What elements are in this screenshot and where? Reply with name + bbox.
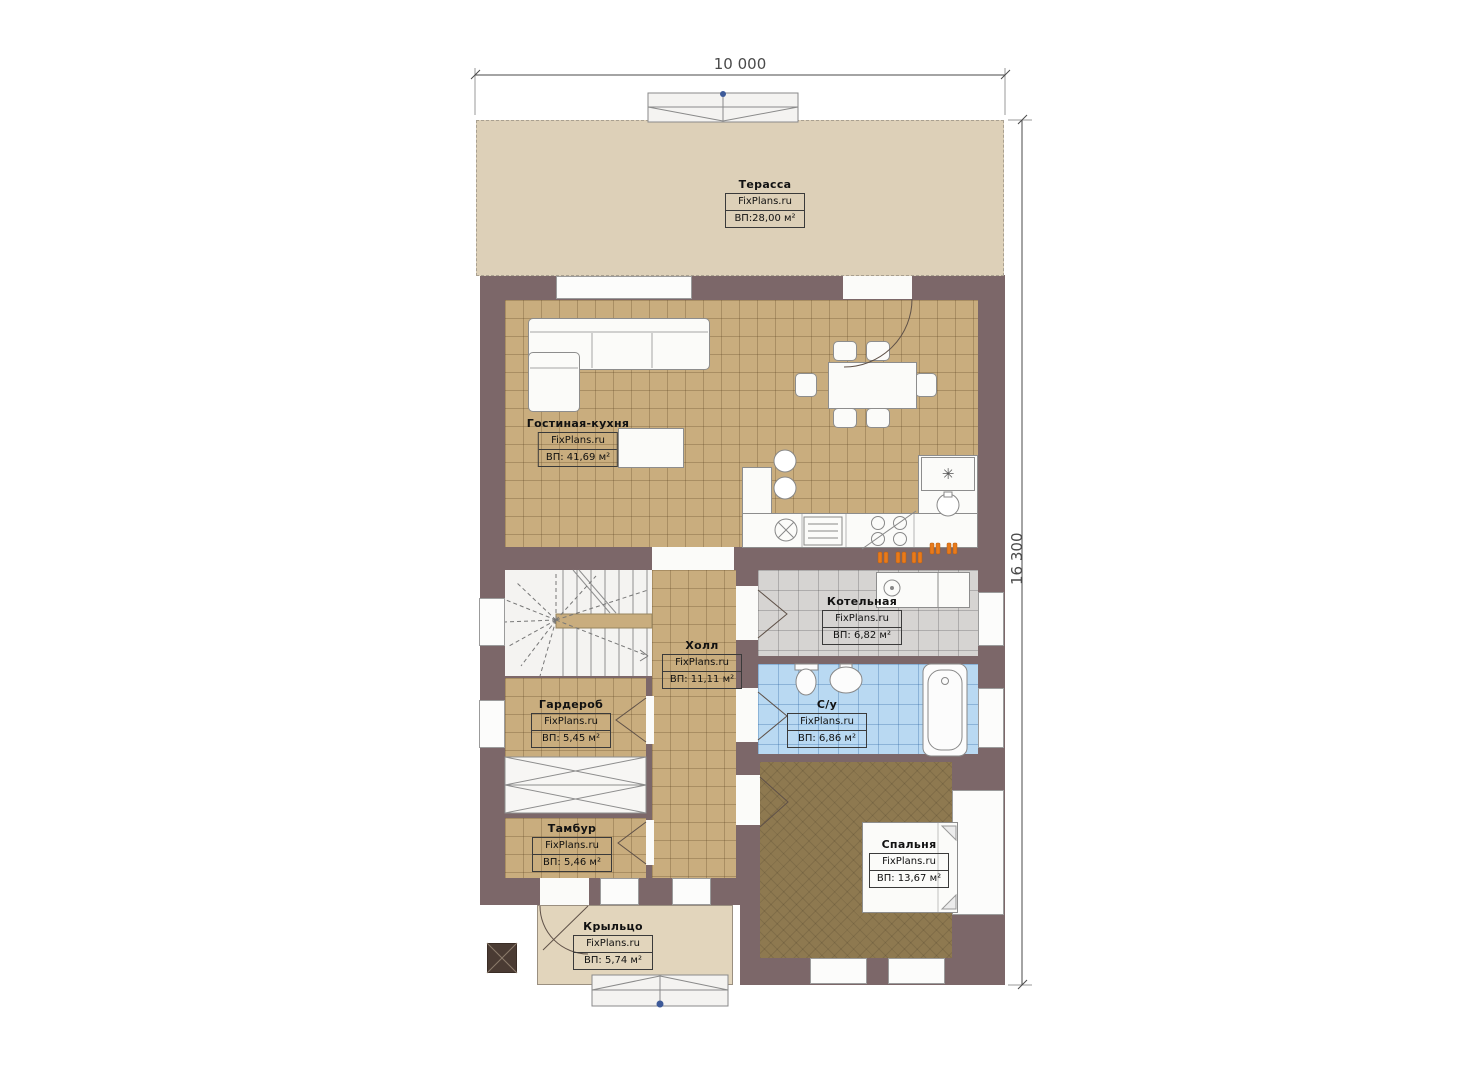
window-stairs-left [479, 598, 505, 646]
window-bathroom-right [978, 688, 1004, 748]
step-marker-icon [657, 1001, 664, 1008]
room-name: Холл [662, 639, 742, 652]
room-name: Крыльцо [573, 920, 653, 933]
room-info-box: FixPlans.ru ВП: 5,46 м² [532, 837, 612, 872]
room-area: ВП: 41,69 м² [539, 449, 617, 466]
brand-text: FixPlans.ru [539, 433, 617, 449]
door-opening-bathroom [736, 688, 758, 742]
room-label-wardrobe: Гардероб FixPlans.ru ВП: 5,45 м² [531, 698, 611, 748]
kitchen-counter [742, 513, 978, 548]
step-marker-icon [720, 91, 726, 97]
room-name: Котельная [822, 595, 902, 608]
kitchen-island [742, 467, 772, 515]
door-opening-vestibule [646, 820, 654, 865]
sofa-chaise [528, 352, 580, 412]
dimension-height-label: 16 300 [1008, 533, 1026, 586]
room-area: ВП: 6,86 м² [788, 730, 866, 747]
room-label-bathroom: С/у FixPlans.ru ВП: 6,86 м² [787, 698, 867, 748]
room-name: С/у [787, 698, 867, 711]
fridge-glyph: ✳ [942, 465, 955, 483]
room-name: Гостиная-кухня [527, 417, 629, 430]
porch-column [487, 943, 517, 973]
room-name: Тамбур [532, 822, 612, 835]
room-label-hall: Холл FixPlans.ru ВП: 11,11 м² [662, 639, 742, 689]
brand-text: FixPlans.ru [532, 714, 610, 730]
brand-text: FixPlans.ru [870, 854, 948, 870]
hall-floor [652, 570, 736, 878]
room-info-box: FixPlans.ru ВП: 5,74 м² [573, 935, 653, 970]
room-info-box: FixPlans.ru ВП: 6,82 м² [822, 610, 902, 645]
room-label-living: Гостиная-кухня FixPlans.ru ВП: 41,69 м² [527, 417, 629, 467]
room-area: ВП: 5,74 м² [574, 952, 652, 969]
room-name: Спальня [869, 838, 949, 851]
room-label-bedroom: Спальня FixPlans.ru ВП: 13,67 м² [869, 838, 949, 888]
window-boiler-right [978, 592, 1004, 646]
window-bedroom-bottom-2 [888, 958, 945, 984]
room-area: ВП: 5,46 м² [533, 854, 611, 871]
window-living-top [556, 276, 692, 299]
room-name: Гардероб [531, 698, 611, 711]
room-info-box: FixPlans.ru ВП: 5,45 м² [531, 713, 611, 748]
brand-text: FixPlans.ru [788, 714, 866, 730]
brand-text: FixPlans.ru [726, 194, 804, 210]
brand-text: FixPlans.ru [533, 838, 611, 854]
dining-chair [795, 373, 817, 397]
door-opening-terrace [843, 276, 912, 299]
opening-bottom-wall-1 [600, 878, 639, 905]
window-bedroom-bottom-1 [810, 958, 867, 984]
room-area: ВП: 11,11 м² [663, 671, 741, 688]
room-label-boiler: Котельная FixPlans.ru ВП: 6,82 м² [822, 595, 902, 645]
room-area: ВП: 5,45 м² [532, 730, 610, 747]
door-opening-porch [540, 878, 589, 905]
room-area: ВП: 6,82 м² [823, 627, 901, 644]
room-name: Терасса [725, 178, 805, 191]
door-opening-bedroom [736, 775, 760, 825]
floor-plan: ✳ [0, 0, 1474, 1080]
window-wardrobe-left [479, 700, 505, 748]
dining-chair [833, 341, 857, 361]
dining-chair [833, 408, 857, 428]
brand-text: FixPlans.ru [823, 611, 901, 627]
room-info-box: FixPlans.ru ВП: 41,69 м² [538, 432, 618, 467]
room-info-box: FixPlans.ru ВП:28,00 м² [725, 193, 805, 228]
room-info-box: FixPlans.ru ВП: 6,86 м² [787, 713, 867, 748]
dining-chair [866, 341, 890, 361]
door-opening-wardrobe [646, 696, 654, 744]
dining-table [828, 362, 917, 409]
fridge-icon: ✳ [921, 457, 975, 491]
room-info-box: FixPlans.ru ВП: 11,11 м² [662, 654, 742, 689]
room-area: ВП: 13,67 м² [870, 870, 948, 887]
room-area: ВП:28,00 м² [726, 210, 804, 227]
staircase-area [505, 570, 652, 676]
opening-living-hall [652, 547, 734, 570]
brand-text: FixPlans.ru [663, 655, 741, 671]
window-bedroom-right [952, 790, 1004, 915]
room-label-porch: Крыльцо FixPlans.ru ВП: 5,74 м² [573, 920, 653, 970]
room-label-terrace: Терасса FixPlans.ru ВП:28,00 м² [725, 178, 805, 228]
entry-steps-top [648, 91, 798, 122]
brand-text: FixPlans.ru [574, 936, 652, 952]
dimension-width-label: 10 000 [714, 55, 767, 73]
room-info-box: FixPlans.ru ВП: 13,67 м² [869, 853, 949, 888]
dining-chair [866, 408, 890, 428]
room-label-vestibule: Тамбур FixPlans.ru ВП: 5,46 м² [532, 822, 612, 872]
door-opening-boiler [736, 586, 758, 640]
dining-chair [915, 373, 937, 397]
opening-bottom-wall-2 [672, 878, 711, 905]
